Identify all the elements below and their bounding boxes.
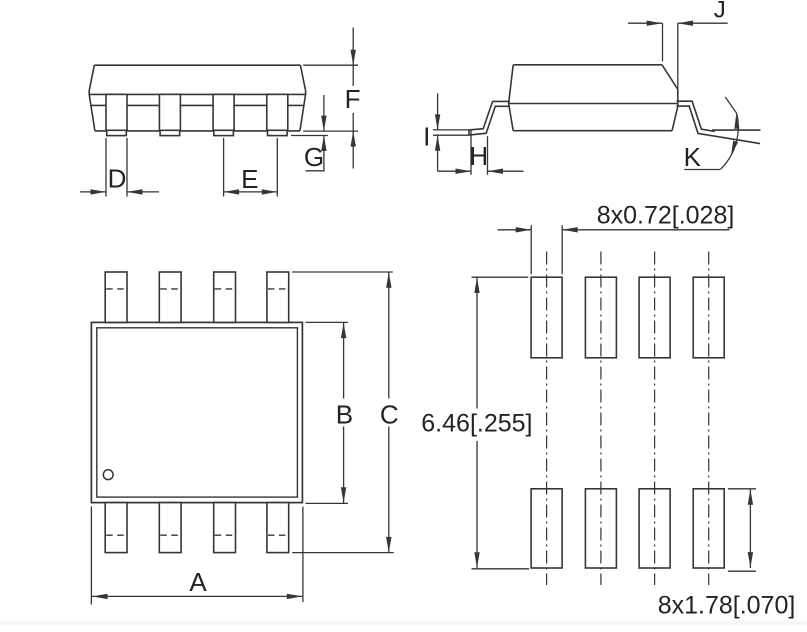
svg-text:8x0.72[.028]: 8x0.72[.028]: [597, 201, 735, 229]
svg-text:I: I: [423, 121, 430, 151]
svg-text:F: F: [345, 84, 361, 114]
svg-text:B: B: [336, 399, 353, 429]
svg-text:G: G: [304, 142, 324, 172]
svg-text:C: C: [380, 399, 399, 429]
svg-text:8x1.78[.070]: 8x1.78[.070]: [658, 591, 796, 619]
svg-text:J: J: [714, 0, 726, 24]
svg-text:A: A: [189, 567, 207, 597]
svg-text:D: D: [108, 164, 127, 194]
svg-text:6.46[.255]: 6.46[.255]: [421, 410, 532, 438]
svg-text:K: K: [684, 142, 702, 172]
svg-text:E: E: [241, 164, 258, 194]
svg-text:H: H: [469, 141, 488, 171]
